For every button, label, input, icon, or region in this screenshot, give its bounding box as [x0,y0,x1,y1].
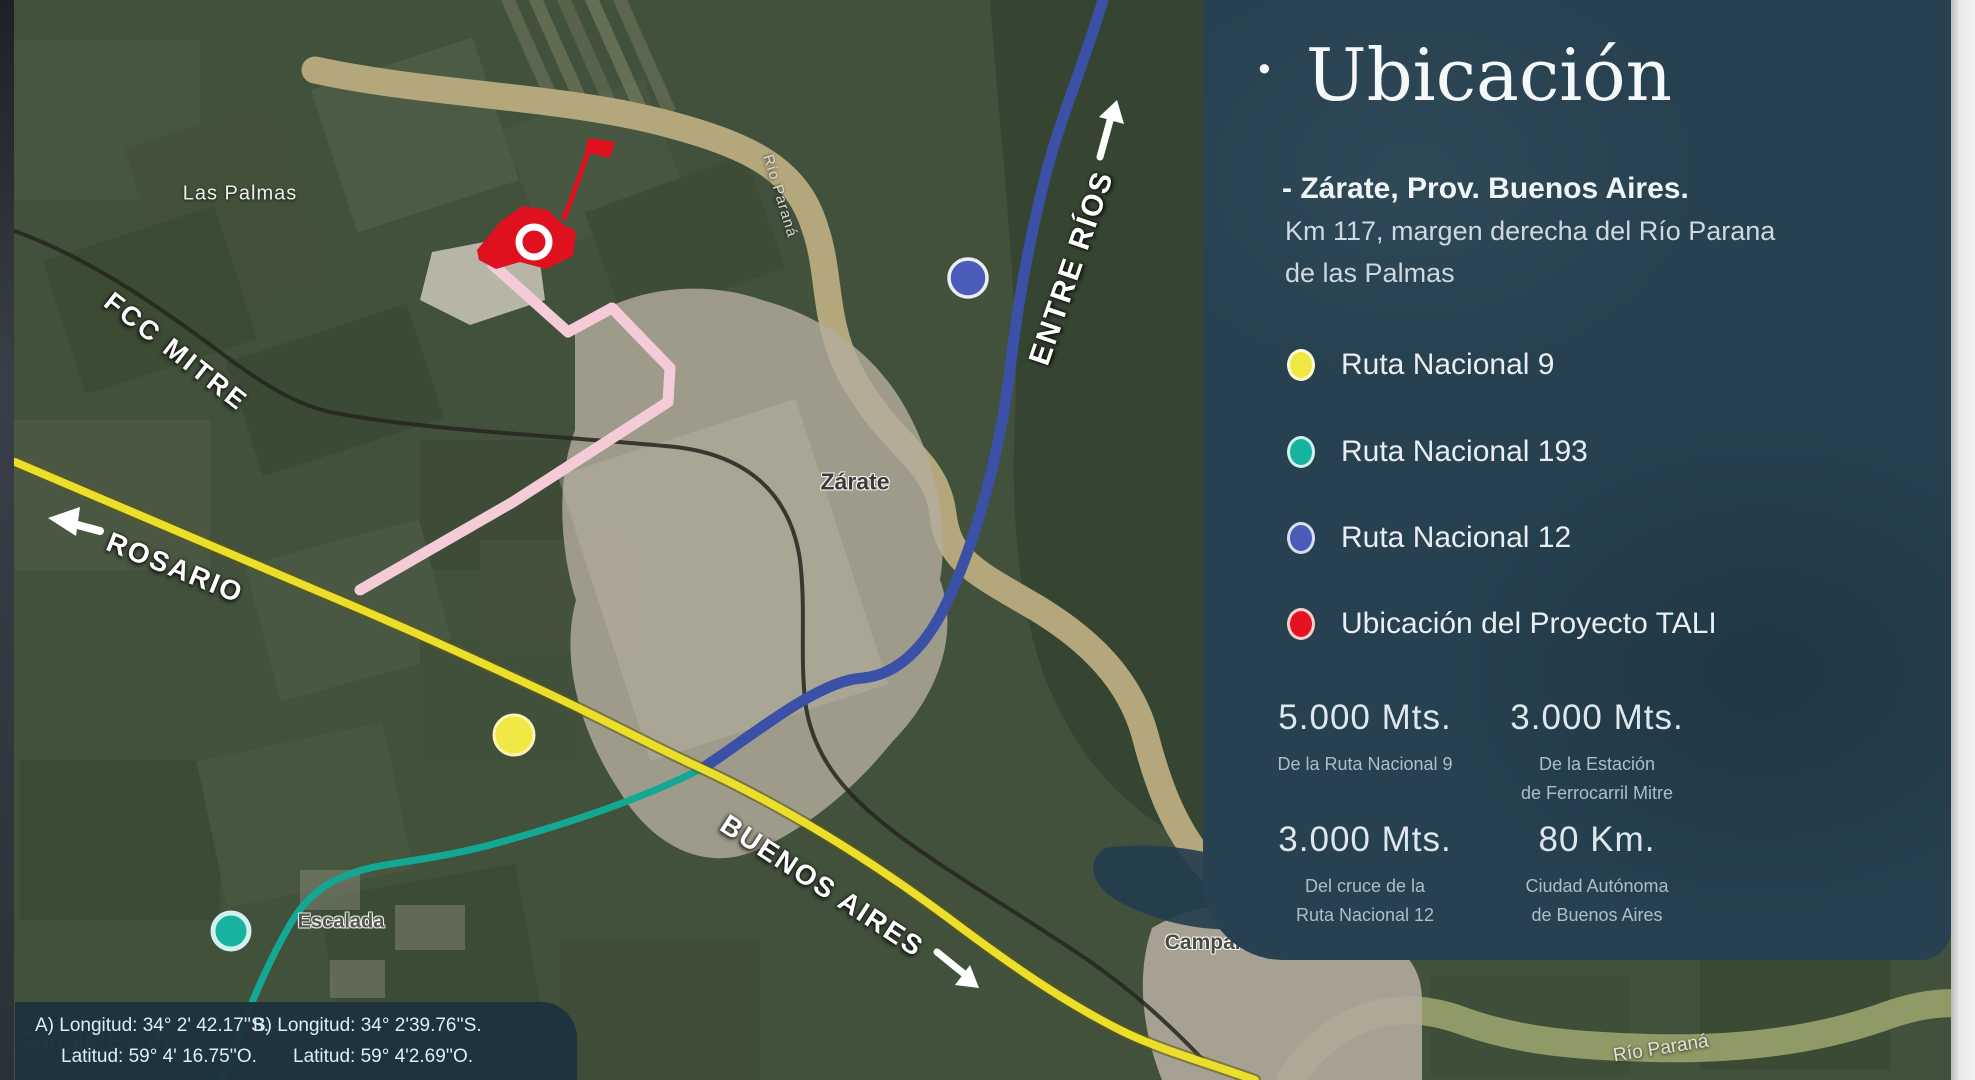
stat-distance-caba: 80 Km. Ciudad Autónomade Buenos Aires [1525,820,1668,930]
stat-value: 3.000 Mts. [1510,698,1683,738]
slide: Las Palmas FCC MITRE ROSARIO ENTRE RÍOS … [0,0,1975,1080]
project-tali-dot [1287,608,1315,640]
point-a-longitude: A) Longitud: 34° 2' 42.17''S. [35,1010,269,1041]
left-edge-strip [0,0,14,1080]
coordinates-box: A) Longitud: 34° 2' 42.17''S. Latitud: 5… [15,1002,577,1080]
route-12-marker [949,259,987,297]
info-panel: ·Ubicación - Zárate, Prov. Buenos Aires.… [1203,0,1951,960]
route-12-dot [1287,522,1315,554]
point-a-latitude: Latitud: 59° 4' 16.75''O. [35,1041,269,1072]
stat-value: 80 Km. [1525,820,1668,860]
point-b-latitude: Latitud: 59° 4'2.69''O. [253,1041,482,1072]
las-palmas-label: Las Palmas [183,183,298,206]
legend-label: Ubicación del Proyecto TALI [1341,607,1717,641]
legend-item-ruta-12: Ruta Nacional 12 [1287,516,1571,560]
legend-item-ruta-193: Ruta Nacional 193 [1287,430,1588,474]
stat-distance-ruta-9: 5.000 Mts. De la Ruta Nacional 9 [1277,698,1452,779]
stat-caption: Ciudad Autónomade Buenos Aires [1525,872,1668,930]
page-title: ·Ubicación [1253,36,1672,115]
route-9-dot [1287,349,1315,381]
title-bullet: · [1253,30,1276,109]
location-detail-line2: de las Palmas [1285,258,1455,289]
stat-caption: De la Estaciónde Ferrocarril Mitre [1510,750,1683,808]
stat-caption: Del cruce de laRuta Nacional 12 [1278,872,1451,930]
point-b-coordinates: B) Longitud: 34° 2'39.76''S. Latitud: 59… [253,1010,482,1072]
right-edge-strip [1951,0,1975,1080]
title-text: Ubicación [1306,33,1672,117]
point-b-longitude: B) Longitud: 34° 2'39.76''S. [253,1010,482,1041]
stat-value: 3.000 Mts. [1278,820,1451,860]
location-detail-line1: Km 117, margen derecha del Río Parana [1285,216,1775,247]
legend-item-proyecto-tali: Ubicación del Proyecto TALI [1287,602,1717,646]
stat-distance-cruce-ruta-12: 3.000 Mts. Del cruce de laRuta Nacional … [1278,820,1451,930]
stat-caption: De la Ruta Nacional 9 [1277,750,1452,779]
legend-item-ruta-9: Ruta Nacional 9 [1287,343,1554,387]
route-193-marker [213,913,249,949]
legend-label: Ruta Nacional 12 [1341,521,1571,555]
route-9-marker [494,715,534,755]
point-a-coordinates: A) Longitud: 34° 2' 42.17''S. Latitud: 5… [35,1010,269,1072]
project-marker [519,227,549,257]
legend-label: Ruta Nacional 9 [1341,348,1554,382]
escalada-label: Escalada [298,911,385,934]
stat-distance-estacion: 3.000 Mts. De la Estaciónde Ferrocarril … [1510,698,1683,808]
location-subtitle: - Zárate, Prov. Buenos Aires. [1282,172,1689,206]
legend-label: Ruta Nacional 193 [1341,435,1588,469]
route-193-dot [1287,436,1315,468]
zarate-label: Zárate [820,469,889,496]
stat-value: 5.000 Mts. [1277,698,1452,738]
